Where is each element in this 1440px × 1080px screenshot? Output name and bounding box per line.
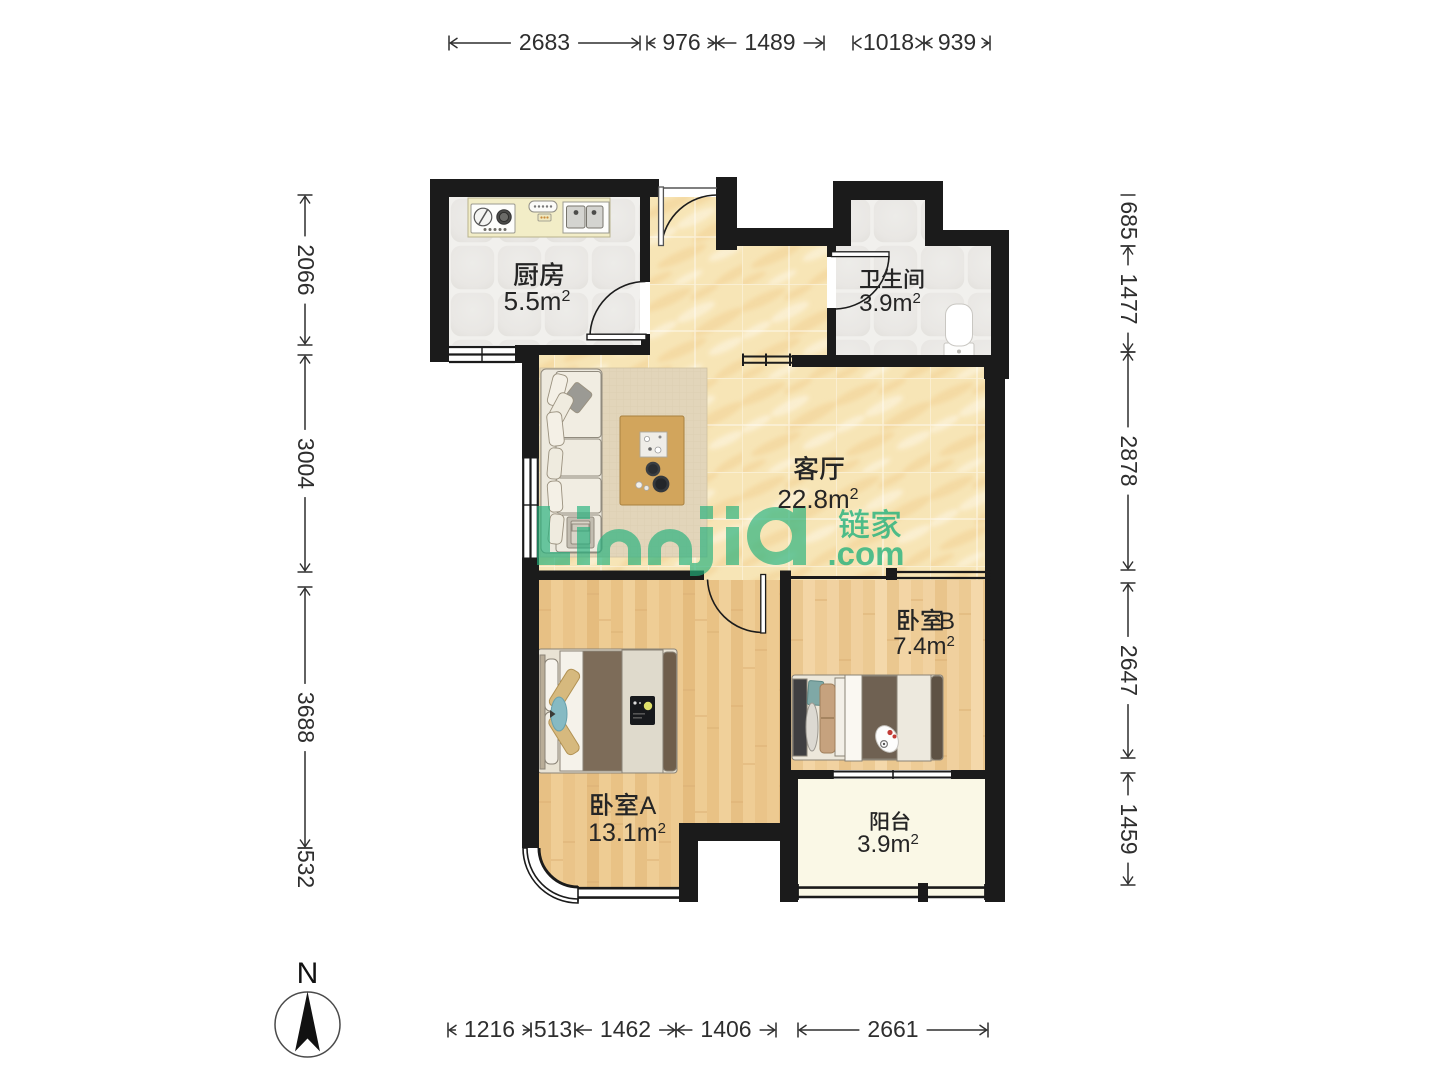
svg-text:2683: 2683 [519, 29, 570, 55]
svg-text:1462: 1462 [600, 1016, 651, 1042]
svg-text:N: N [297, 957, 319, 990]
svg-text:532: 532 [293, 850, 319, 888]
svg-text:685: 685 [1116, 201, 1142, 239]
svg-text:2647: 2647 [1116, 645, 1142, 696]
svg-text:2066: 2066 [293, 244, 319, 295]
svg-text:7.4m2: 7.4m2 [893, 633, 955, 660]
svg-text:2878: 2878 [1116, 435, 1142, 486]
svg-text:1018: 1018 [863, 29, 914, 55]
svg-text:3.9m2: 3.9m2 [857, 831, 919, 858]
svg-text:5.5m2: 5.5m2 [504, 286, 571, 316]
svg-text:1477: 1477 [1116, 273, 1142, 324]
svg-text:3.9m2: 3.9m2 [859, 290, 921, 317]
svg-text:1489: 1489 [744, 29, 795, 55]
svg-text:B: B [939, 608, 955, 635]
svg-text:A: A [640, 792, 657, 820]
svg-text:22.8m2: 22.8m2 [777, 484, 858, 514]
svg-text:1216: 1216 [464, 1016, 515, 1042]
svg-text:.com: .com [827, 535, 904, 572]
svg-text:2661: 2661 [867, 1016, 918, 1042]
svg-text:513: 513 [534, 1016, 572, 1042]
svg-text:3688: 3688 [293, 692, 319, 743]
svg-text:1459: 1459 [1116, 803, 1142, 854]
svg-text:939: 939 [938, 29, 976, 55]
svg-text:13.1m2: 13.1m2 [588, 819, 666, 847]
svg-text:3004: 3004 [293, 438, 319, 489]
svg-text:976: 976 [662, 29, 700, 55]
svg-text:1406: 1406 [700, 1016, 751, 1042]
